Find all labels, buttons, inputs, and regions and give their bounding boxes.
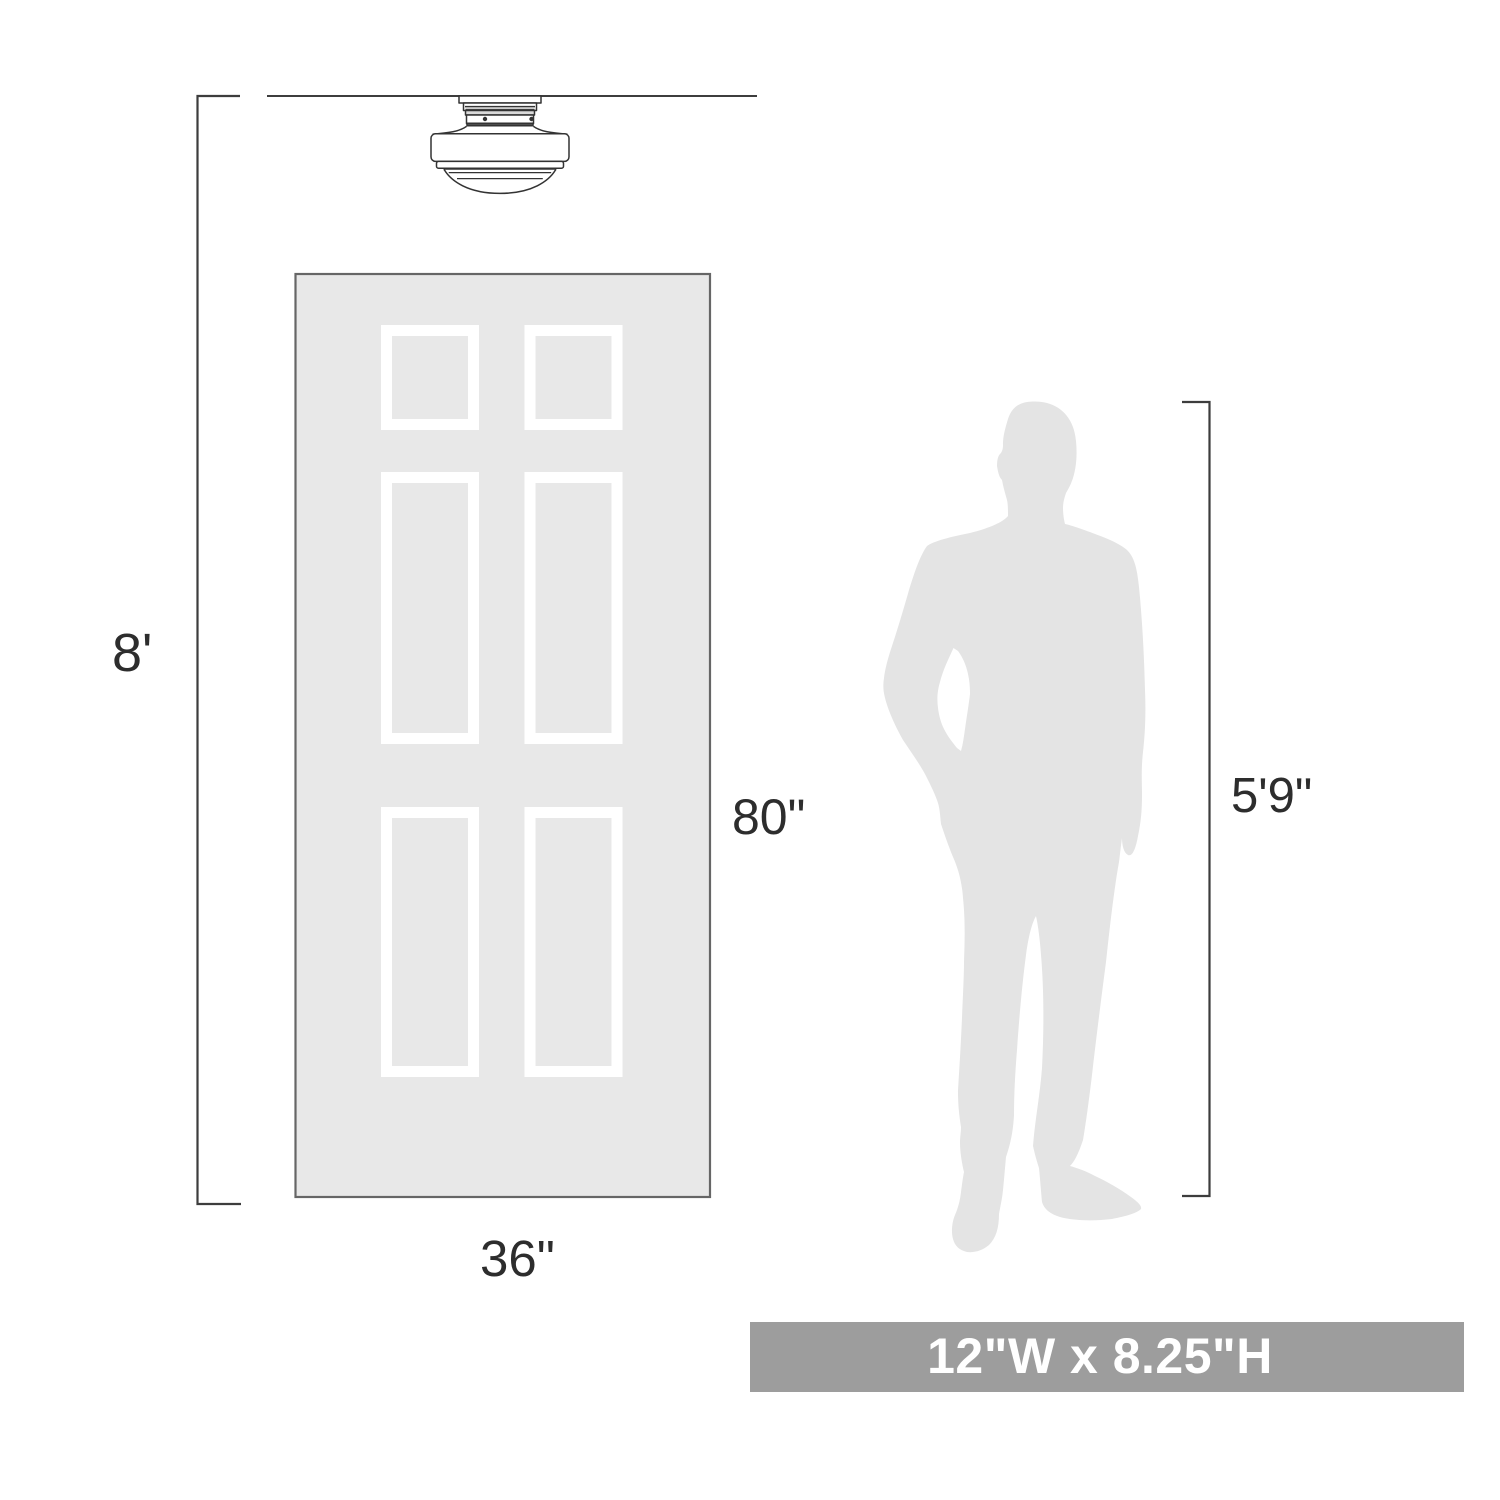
svg-text:5'9": 5'9"	[1231, 769, 1312, 823]
svg-text:80": 80"	[732, 789, 805, 845]
svg-text:12"W x 8.25"H: 12"W x 8.25"H	[927, 1328, 1273, 1384]
svg-text:8': 8'	[112, 623, 152, 683]
svg-text:36": 36"	[480, 1230, 555, 1287]
